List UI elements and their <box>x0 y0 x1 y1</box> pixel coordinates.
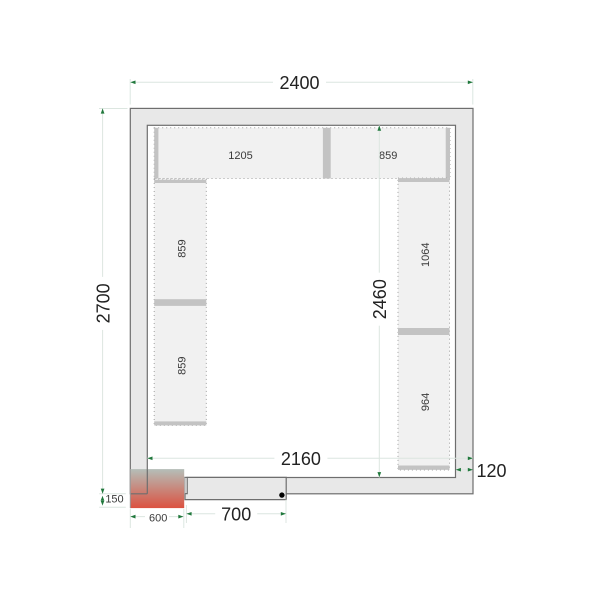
svg-text:600: 600 <box>149 512 167 524</box>
svg-text:859: 859 <box>176 357 188 375</box>
svg-text:120: 120 <box>477 461 507 481</box>
svg-text:964: 964 <box>420 393 432 411</box>
svg-text:150: 150 <box>105 494 123 506</box>
svg-text:2460: 2460 <box>370 279 390 319</box>
svg-text:1064: 1064 <box>420 243 432 267</box>
svg-text:700: 700 <box>221 504 251 524</box>
svg-text:859: 859 <box>379 150 397 162</box>
svg-text:859: 859 <box>177 239 189 257</box>
svg-text:2700: 2700 <box>94 283 114 323</box>
svg-text:2400: 2400 <box>279 73 319 93</box>
svg-text:2160: 2160 <box>281 449 321 469</box>
svg-text:1205: 1205 <box>228 150 252 162</box>
